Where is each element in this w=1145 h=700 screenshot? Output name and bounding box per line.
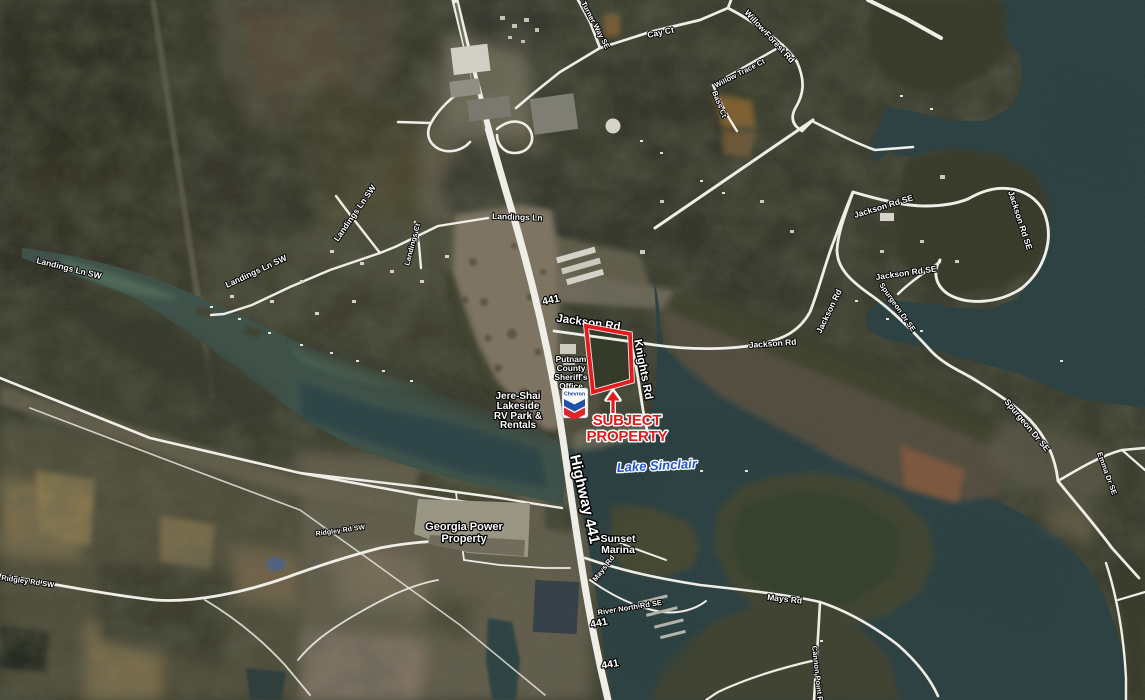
svg-text:Property: Property (441, 533, 487, 545)
svg-text:Georgia Power: Georgia Power (425, 521, 503, 533)
svg-text:SUBJECT: SUBJECT (593, 412, 662, 429)
svg-text:Landings Ln: Landings Ln (492, 211, 543, 223)
svg-text:Chevron: Chevron (564, 392, 585, 398)
svg-text:Marina: Marina (601, 544, 635, 556)
svg-text:Rentals: Rentals (500, 420, 537, 431)
svg-text:PROPERTY: PROPERTY (587, 428, 668, 445)
